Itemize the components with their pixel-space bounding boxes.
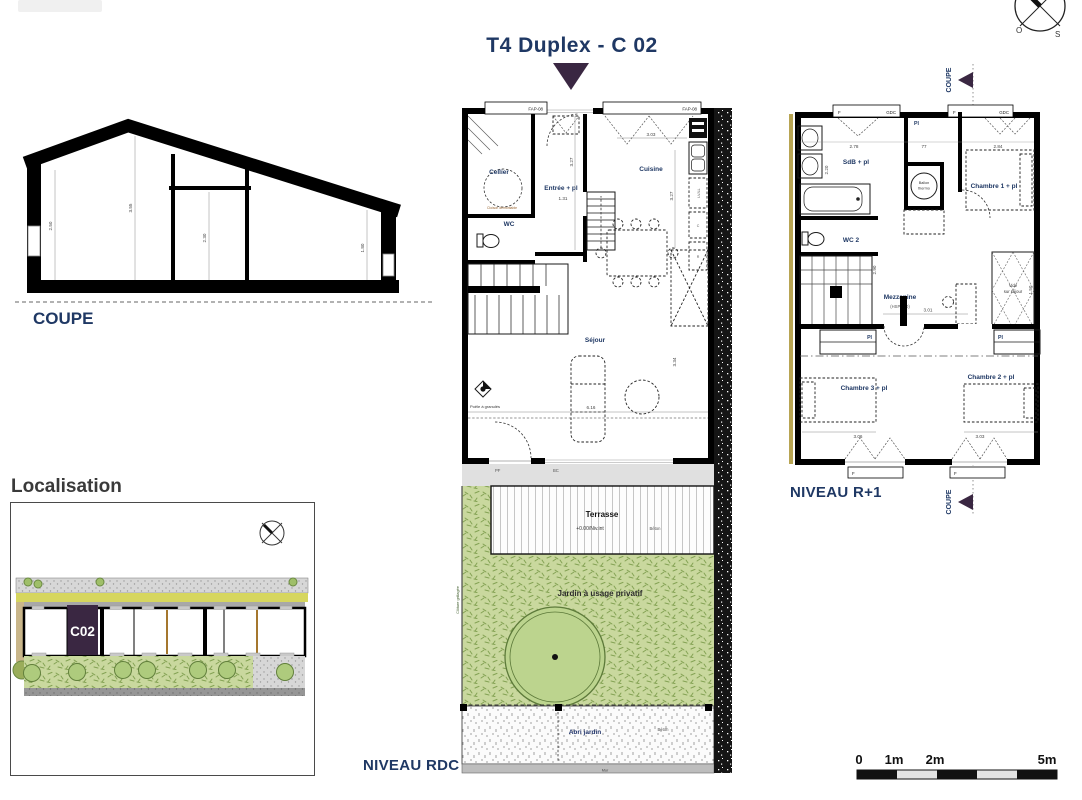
unit-c02-label: C02	[70, 624, 95, 639]
garden: Terrasse +0.00/Niv.int Béton Jardin à us…	[456, 464, 714, 773]
r1-header-gdc-right: GDC	[999, 110, 1009, 115]
compass-west-label: O	[1016, 26, 1022, 35]
entree-label: Entrée + pl	[544, 185, 578, 192]
r1-dim-ch1-w: 2.84	[994, 144, 1003, 149]
r1-dim-ch2: 3.03	[976, 434, 985, 439]
scale-0-label: 0	[855, 752, 862, 767]
wc-label: WC	[504, 221, 515, 228]
rdc-plan-drawing: Terrasse +0.00/Niv.int Béton Jardin à us…	[455, 100, 740, 800]
terrasse-area	[491, 486, 714, 554]
localisation-map: C02	[10, 502, 313, 774]
title-pointer-icon	[553, 63, 589, 90]
r1-level-label: NIVEAU R+1	[790, 484, 882, 501]
section-dim-mid: 2.30	[202, 233, 207, 242]
r1-dim-ch3: 3.06	[854, 434, 863, 439]
section-marker-top-label: COUPE	[946, 67, 953, 92]
cuisine-label: Cuisine	[639, 166, 663, 173]
r1-dim-pl-w: 77	[921, 144, 927, 149]
section-marker-top: COUPE	[946, 67, 973, 92]
fence-label: Clôture grillagée	[456, 586, 460, 614]
pl-top-label: Pl	[914, 121, 919, 127]
scale-bar: 0 1m 2m 5m	[845, 750, 1070, 795]
cloison-label: Cloison démontable	[487, 206, 517, 210]
appliance-c-label: C	[697, 224, 700, 228]
section-dim-right: 1.80	[360, 243, 365, 252]
section-marker-bottom-label: COUPE	[946, 489, 953, 514]
page-title: T4 Duplex - C 02	[432, 34, 712, 58]
rdc-dim-cuisine-w: 3.03	[647, 132, 656, 137]
r1-header-f-right: F	[953, 110, 956, 115]
vide-label-1: Vide	[1009, 283, 1018, 288]
wc2-label: WC 2	[843, 237, 860, 244]
r1-dim-vide: 1.50	[1028, 285, 1033, 294]
abri-material-label: Béton	[658, 727, 670, 732]
terrasse-level-label: +0.00/Niv.int	[576, 526, 604, 532]
compass-south-label: S	[1055, 30, 1060, 39]
sdb-label: SdB + pl	[843, 159, 869, 166]
terrasse-material-label: Béton	[650, 526, 662, 531]
r1-dim-sdb-w: 2.78	[850, 144, 859, 149]
r1-building: F GDC F GDC	[795, 105, 1040, 465]
cellier-label: Cellier	[489, 169, 509, 176]
jardin-label: Jardin à usage privatif	[558, 589, 643, 598]
rdc-dim-cuisine-h: 3.27	[669, 191, 674, 200]
r1-bottom-header-f-right: F	[954, 471, 957, 476]
appliance-r-label: R	[697, 255, 700, 259]
section-marker-bottom-arrow-icon	[958, 494, 973, 510]
r1-header-gdc-left: GDC	[886, 110, 896, 115]
abri-label: Abri jardin	[569, 729, 602, 736]
ballon-label-2: thermo	[918, 187, 930, 191]
faded-logo	[18, 0, 102, 12]
localisation-title: Localisation	[11, 476, 122, 498]
rdc-window-bc-label: BC	[553, 468, 559, 473]
r1-dim-sdb-h: 2.20	[824, 165, 829, 174]
section-dimensions: 2.50 3.55 2.30 1.80	[48, 136, 367, 280]
rdc-dim-sejour-w: 6.16	[587, 405, 596, 410]
party-wall-strip	[789, 114, 793, 464]
vide-label-2: sur séjour	[1004, 289, 1023, 294]
chambre2-label: Chambre 2 + pl	[968, 374, 1015, 381]
chambre3-label: Chambre 3 + pl	[841, 385, 888, 392]
compass-rose-icon: O S	[1008, 0, 1082, 52]
poele-label: Poêle à granulés	[470, 404, 500, 409]
localisation-compass-icon	[260, 521, 284, 545]
terrasse-label: Terrasse	[586, 510, 619, 519]
scale-5m-label: 5m	[1038, 752, 1057, 767]
ballon-label-1: Ballon	[919, 181, 930, 185]
section-dim-left: 2.50	[48, 221, 53, 230]
r1-dim-mezz: 3.01	[924, 308, 933, 313]
section-drawing: 2.50 3.55 2.30 1.80	[15, 108, 435, 308]
adjacent-building-hatch	[714, 108, 732, 773]
scale-2m-label: 2m	[926, 752, 945, 767]
scale-1m-label: 1m	[885, 752, 904, 767]
r1-bottom-header-f-left: F	[852, 471, 855, 476]
rdc-level-label: NIVEAU RDC	[363, 757, 459, 774]
localisation-buildings: C02	[24, 602, 305, 657]
appliance-lv-label: LV/LL	[697, 188, 701, 197]
mur-label: Mur	[602, 769, 609, 773]
pl-left-label: Pl	[867, 335, 872, 341]
rdc-dim-entree-h: 3.27	[569, 157, 574, 166]
rdc-header-fap-left: FAP-08	[528, 107, 543, 112]
section-dim-peak: 3.55	[128, 203, 133, 212]
rdc-dim-sejour-h: 3.34	[672, 357, 677, 366]
rdc-window-pf-label: PF	[495, 468, 501, 473]
chambre1-label: Chambre 1 + pl	[971, 183, 1018, 190]
rdc-header-fap-right: FAP-08	[682, 107, 697, 112]
r1-header-f-left: F	[838, 110, 841, 115]
r1-plan-drawing: COUPE COUPE F GDC F GDC SdB + pl 2.20 WC…	[788, 58, 1050, 530]
r1-dim-stair: 2.90	[872, 265, 877, 274]
section-marker-bottom: COUPE	[946, 489, 973, 514]
section-marker-top-arrow-icon	[958, 72, 973, 88]
rdc-dim-entree-w: 1.31	[559, 196, 568, 201]
pl-right-label: Pl	[998, 335, 1003, 341]
section-title: COUPE	[33, 309, 93, 329]
sejour-label: Séjour	[585, 337, 606, 344]
